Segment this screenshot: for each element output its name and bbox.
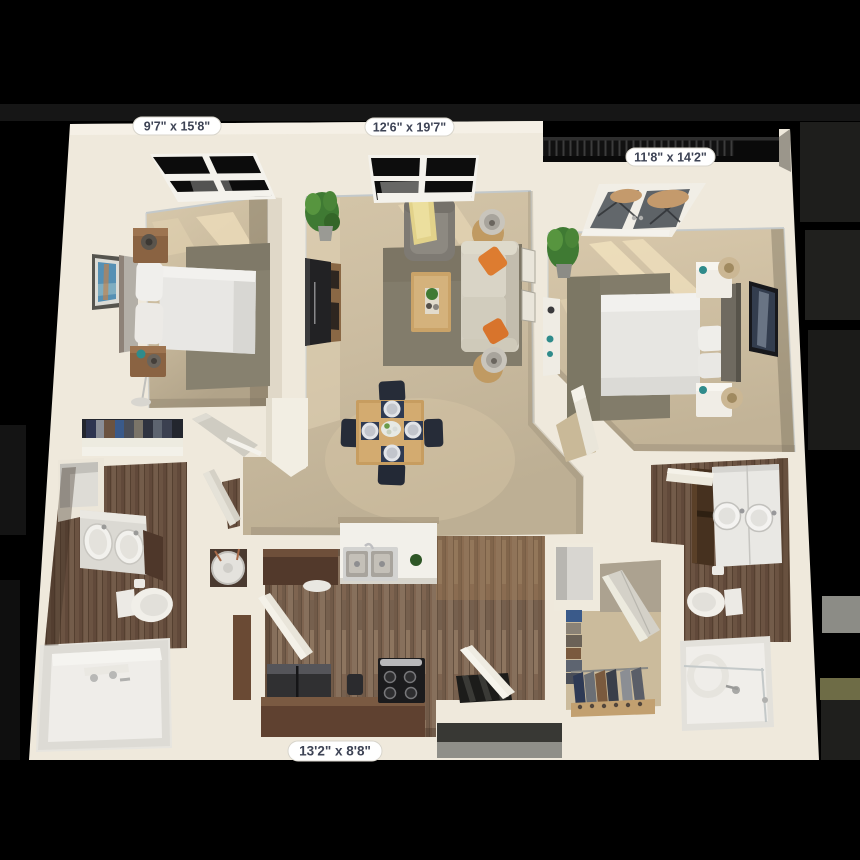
svg-text:11'8" x 14'2": 11'8" x 14'2"	[634, 151, 707, 165]
svg-text:9'7" x 15'8": 9'7" x 15'8"	[144, 120, 211, 134]
svg-text:12'6" x 19'7": 12'6" x 19'7"	[373, 121, 446, 135]
svg-text:13'2" x 8'8": 13'2" x 8'8"	[299, 744, 371, 759]
